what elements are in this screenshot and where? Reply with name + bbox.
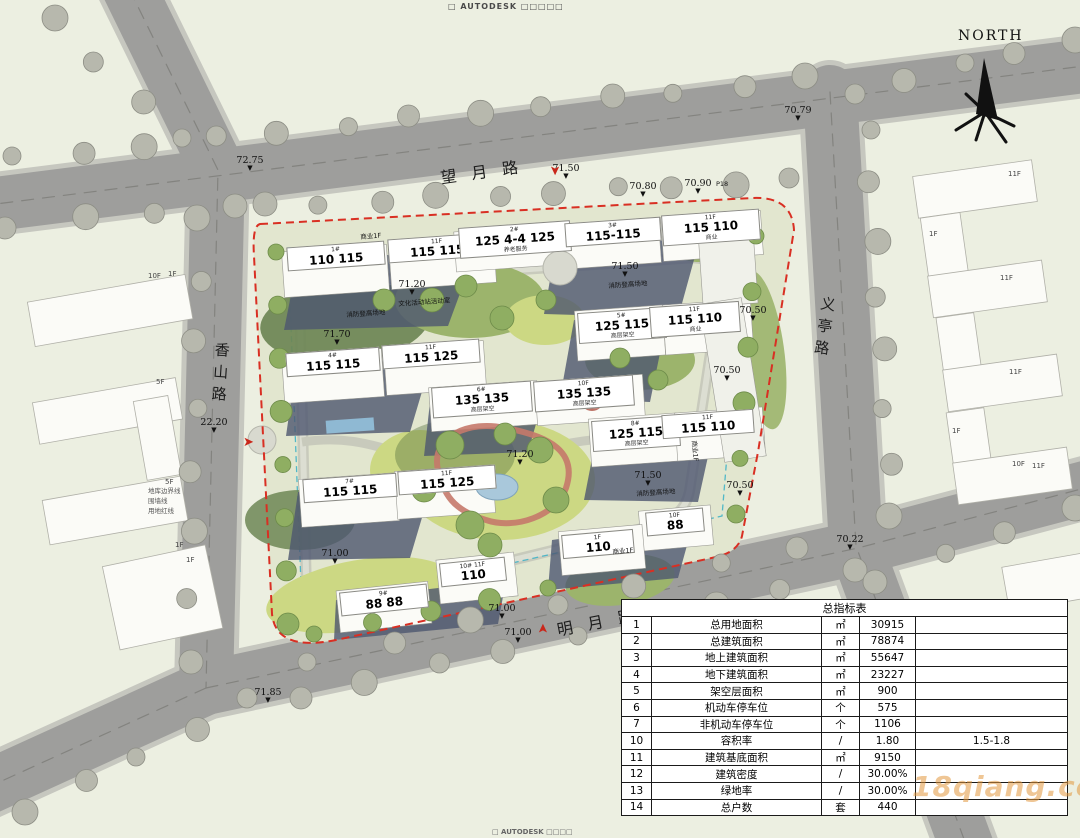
table-cell-remark <box>916 666 1068 683</box>
table-cell-value: 23227 <box>860 666 916 683</box>
neighbor-floor-label: 5F <box>156 378 164 386</box>
table-cell-unit: / <box>822 766 860 783</box>
legend-item: 地库边界线 <box>148 486 181 496</box>
table-cell-name: 架空层面积 <box>652 683 822 700</box>
table-cell-name: 建筑基底面积 <box>652 749 822 766</box>
table-cell-no: 11 <box>622 749 652 766</box>
table-title-row: 总指标表 <box>622 600 1068 617</box>
table-row: 1总用地面积㎡30915 <box>622 617 1068 634</box>
table-cell-remark <box>916 633 1068 650</box>
table-cell-value: 30.00% <box>860 782 916 799</box>
table-title: 总指标表 <box>622 600 1068 617</box>
table-cell-unit: 个 <box>822 699 860 716</box>
building-label: 1#110 115 <box>286 241 385 272</box>
elevation-marker: 71.20▼ <box>506 450 533 466</box>
road-label-wangyue: 望月路 <box>439 152 534 189</box>
entrance-marker: ➤ <box>537 623 550 634</box>
table-cell-name: 容积率 <box>652 733 822 750</box>
table-cell-name: 机动车停车位 <box>652 699 822 716</box>
neighbor-floor-label: 11F <box>1000 274 1013 282</box>
table-row: 11建筑基底面积㎡9150 <box>622 749 1068 766</box>
table-cell-remark <box>916 749 1068 766</box>
table-cell-remark <box>916 699 1068 716</box>
building-label: 11F115 110商业 <box>661 209 761 247</box>
elevation-marker: 71.00▼ <box>321 549 348 565</box>
map-note-label: 商业1F <box>360 230 382 241</box>
building-label: 6#135 135高层架空 <box>431 381 533 419</box>
road-label-xiangshan: 香山路 <box>208 341 234 408</box>
table-cell-no: 12 <box>622 766 652 783</box>
table-row: 3地上建筑面积㎡55647 <box>622 650 1068 667</box>
elevation-marker: 72.75▼ <box>236 156 263 172</box>
table-row: 5架空层面积㎡900 <box>622 683 1068 700</box>
building-label: 10F135 135高层架空 <box>533 375 635 413</box>
neighbor-floor-label: 11F <box>1032 462 1045 470</box>
table-cell-no: 10 <box>622 733 652 750</box>
table-row: 7非机动车停车位个1106 <box>622 716 1068 733</box>
elevation-marker: 71.70▼ <box>323 330 350 346</box>
entrance-marker: ➤ <box>243 436 254 449</box>
table-cell-value: 30.00% <box>860 766 916 783</box>
neighbor-floor-label: 1F <box>952 427 960 435</box>
table-cell-no: 5 <box>622 683 652 700</box>
neighbor-floor-label: 1F <box>929 230 937 238</box>
table-cell-value: 78874 <box>860 633 916 650</box>
building-label: 7#115 115 <box>302 473 397 503</box>
table-cell-value: 440 <box>860 799 916 816</box>
elevation-marker: 71.85▼ <box>254 688 281 704</box>
table-cell-value: 55647 <box>860 650 916 667</box>
table-cell-value: 30915 <box>860 617 916 634</box>
site-plan-canvas: □ AUTODESK □□□□□ NORTH 望月路 明月路 香山路 义亭路 地… <box>0 0 1080 838</box>
building-label: 11F115 110商业 <box>649 301 741 338</box>
elevation-marker: 71.20▼ <box>398 280 425 296</box>
building-label: 3#115-115 <box>564 217 661 248</box>
table-row: 4地下建筑面积㎡23227 <box>622 666 1068 683</box>
map-note-label: 消防登高场地 <box>608 277 648 290</box>
table-cell-no: 7 <box>622 716 652 733</box>
neighbor-floor-label: 5F <box>165 478 173 486</box>
neighbor-floor-label: 11F <box>1009 368 1022 376</box>
table-cell-name: 总建筑面积 <box>652 633 822 650</box>
table-row: 10容积率/1.801.5-1.8 <box>622 733 1068 750</box>
table-cell-remark: 1.5-1.8 <box>916 733 1068 750</box>
north-label: NORTH <box>958 28 1024 44</box>
line-legend: 地库边界线围墙线用地红线 <box>148 486 181 516</box>
table-cell-value: 900 <box>860 683 916 700</box>
elevation-marker: 70.50▼ <box>739 306 766 322</box>
elevation-marker: 71.00▼ <box>488 604 515 620</box>
table-cell-name: 绿地率 <box>652 782 822 799</box>
table-cell-name: 地上建筑面积 <box>652 650 822 667</box>
map-note-label: P18 <box>716 180 728 188</box>
table-cell-remark <box>916 617 1068 634</box>
legend-item: 围墙线 <box>148 496 181 506</box>
table-cell-unit: ㎡ <box>822 683 860 700</box>
neighbor-floor-label: 1F <box>186 556 194 564</box>
neighbor-floor-label: 1F <box>168 270 176 278</box>
table-cell-value: 575 <box>860 699 916 716</box>
watermark: 18qiang.com <box>912 770 1080 803</box>
map-note-label: 商业1F <box>690 440 702 462</box>
elevation-marker: 70.79▼ <box>784 106 811 122</box>
neighbor-floor-label: 10F <box>1012 460 1025 468</box>
neighbor-floor-label: 1F <box>175 541 183 549</box>
building-label: 11F115 125 <box>397 465 496 496</box>
table-cell-no: 4 <box>622 666 652 683</box>
map-note-label: 消防登高场地 <box>346 306 386 319</box>
table-cell-remark <box>916 683 1068 700</box>
table-cell-unit: / <box>822 782 860 799</box>
legend-item: 用地红线 <box>148 506 181 516</box>
elevation-marker: 22.20▼ <box>200 418 227 434</box>
road-label-yiting: 义亭路 <box>810 295 840 363</box>
table-cell-name: 总户数 <box>652 799 822 816</box>
table-cell-name: 非机动车停车位 <box>652 716 822 733</box>
table-cell-unit: ㎡ <box>822 617 860 634</box>
map-note-label: 消防登高场地 <box>636 485 676 498</box>
table-cell-unit: 套 <box>822 799 860 816</box>
elevation-marker: 70.90▼ <box>684 179 711 195</box>
table-cell-no: 6 <box>622 699 652 716</box>
building-label: 4#115 115 <box>285 347 380 377</box>
table-cell-value: 1.80 <box>860 733 916 750</box>
table-cell-unit: ㎡ <box>822 749 860 766</box>
building-label: 9#88 88 <box>339 583 429 616</box>
table-cell-unit: 个 <box>822 716 860 733</box>
elevation-marker: 70.50▼ <box>713 366 740 382</box>
table-cell-unit: / <box>822 733 860 750</box>
table-cell-unit: ㎡ <box>822 666 860 683</box>
entrance-marker: ➤ <box>548 165 561 176</box>
table-cell-no: 2 <box>622 633 652 650</box>
elevation-marker: 71.50▼ <box>634 471 661 487</box>
building-label: 10F88 <box>645 508 705 537</box>
neighbor-floor-label: 11F <box>1008 170 1021 178</box>
table-cell-no: 1 <box>622 617 652 634</box>
table-cell-value: 9150 <box>860 749 916 766</box>
autodesk-watermark-bottom: □ AUTODESK □□□□ <box>492 828 573 836</box>
table-cell-no: 14 <box>622 799 652 816</box>
table-cell-value: 1106 <box>860 716 916 733</box>
neighbor-floor-label: 10F <box>148 272 161 280</box>
table-cell-name: 总用地面积 <box>652 617 822 634</box>
table-cell-name: 建筑密度 <box>652 766 822 783</box>
elevation-marker: 70.50▼ <box>726 481 753 497</box>
building-label: 10# 11F110 <box>439 557 507 588</box>
table-cell-no: 13 <box>622 782 652 799</box>
table-cell-name: 地下建筑面积 <box>652 666 822 683</box>
elevation-marker: 71.00▼ <box>504 628 531 644</box>
building-label: 11F115 125 <box>381 339 480 370</box>
building-label: 11F115 110 <box>661 409 754 439</box>
table-cell-no: 3 <box>622 650 652 667</box>
table-cell-unit: ㎡ <box>822 650 860 667</box>
table-cell-remark <box>916 716 1068 733</box>
autodesk-watermark-top: □ AUTODESK □□□□□ <box>448 2 564 11</box>
map-note-label: 商业1F <box>612 544 634 556</box>
elevation-marker: 70.80▼ <box>629 182 656 198</box>
table-cell-unit: ㎡ <box>822 633 860 650</box>
elevation-marker: 70.22▼ <box>836 535 863 551</box>
table-cell-remark <box>916 650 1068 667</box>
map-note-label: 文化活动站活动室 <box>398 294 451 308</box>
table-row: 6机动车停车位个575 <box>622 699 1068 716</box>
building-label: 2#125 4-4 125养老服务 <box>458 220 572 259</box>
elevation-marker: 71.50▼ <box>611 262 638 278</box>
table-row: 2总建筑面积㎡78874 <box>622 633 1068 650</box>
